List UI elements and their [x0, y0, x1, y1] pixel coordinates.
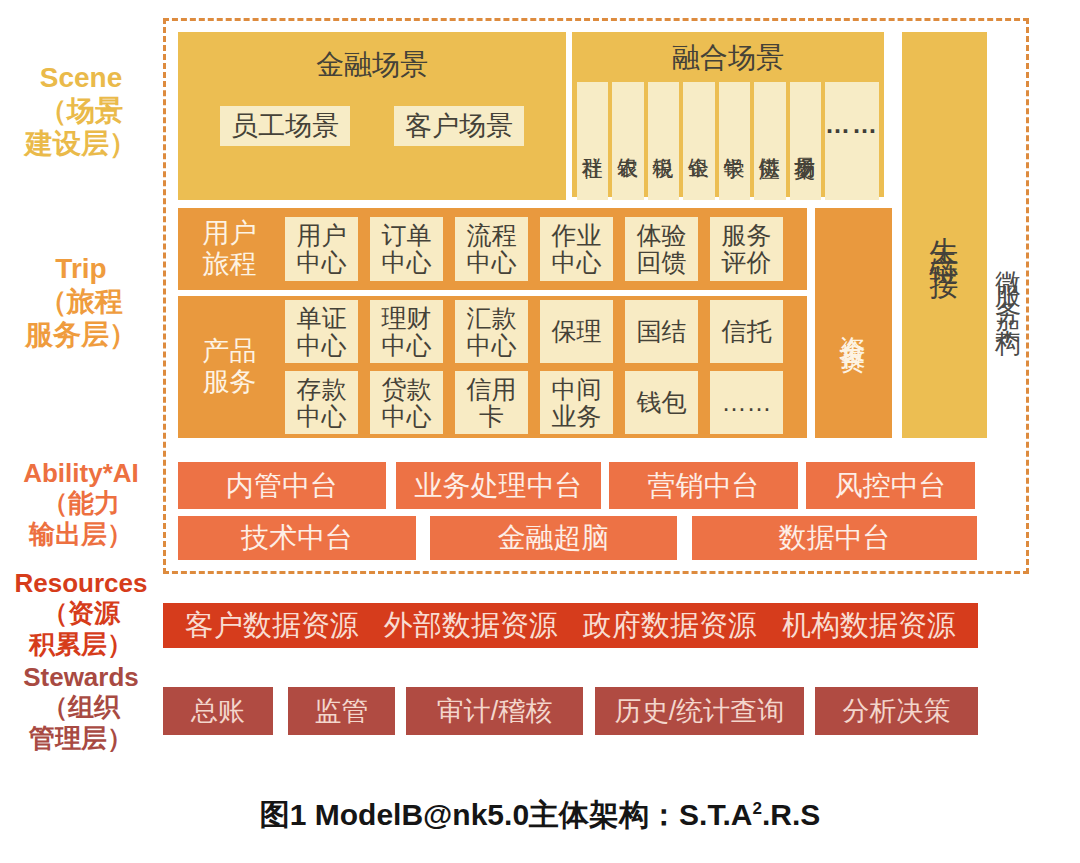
- operation-center-cell: 作业中心: [540, 217, 613, 281]
- figure-caption-prefix: 图1 ModelB@nk5.0主体架构：S.T.A: [260, 798, 753, 831]
- trust-cell: 信托: [710, 300, 783, 363]
- financial-scene-title: 金融场景: [178, 32, 566, 84]
- financial-superbrain-box: 金融超脑: [430, 516, 677, 560]
- marketing-platform-box: 营销中台: [609, 462, 798, 509]
- figure-caption-superscript: 2: [752, 799, 761, 818]
- layer-label-scene-zh2: 建设层）: [0, 128, 162, 161]
- external-data-resource: 外部数据资源: [384, 606, 558, 646]
- layer-label-scene: Scene （场景 建设层）: [0, 62, 162, 160]
- capital-investment-column: 资金投资: [815, 208, 892, 438]
- layer-label-trip-zh1: （旅程: [0, 286, 162, 319]
- fusion-col-ellipsis: ……: [825, 82, 879, 200]
- capital-investment-label: 资金投资: [836, 315, 871, 331]
- fusion-scene-title: 融合场景: [572, 32, 884, 77]
- layer-label-resources-en: Resources: [0, 568, 162, 598]
- layer-label-ability-zh1: （能力: [0, 488, 162, 518]
- layer-label-resources-zh1: （资源: [0, 598, 162, 628]
- layer-label-resources: Resources （资源 积累层）: [0, 568, 162, 659]
- order-center-cell: 订单中心: [370, 217, 443, 281]
- internal-mgmt-platform-box: 内管中台: [178, 462, 386, 509]
- deposit-center-cell: 存款中心: [285, 371, 358, 434]
- documents-center-cell: 单证中心: [285, 300, 358, 363]
- intl-settlement-cell: 国结: [625, 300, 698, 363]
- institution-data-resource: 机构数据资源: [782, 606, 956, 646]
- product-service-label: 产品服务: [178, 296, 285, 438]
- general-ledger-box: 总账: [163, 687, 273, 735]
- factoring-cell: 保理: [540, 300, 613, 363]
- audit-verification-box: 审计/稽核: [406, 687, 583, 735]
- layer-label-resources-zh2: 积累层）: [0, 629, 162, 659]
- service-evaluation-cell: 服务评价: [710, 217, 783, 281]
- layer-label-stewards-zh2: 管理层）: [0, 723, 162, 753]
- eco-link-label: 生态链接: [925, 213, 965, 257]
- modelbank-architecture-diagram: Scene （场景 建设层） Trip （旅程 服务层） Ability*AI …: [0, 0, 1080, 863]
- fusion-col-supply-chain: 供应链: [754, 82, 785, 200]
- fusion-col-bank-enterprise: 银企: [683, 82, 714, 200]
- business-processing-platform-box: 业务处理中台: [396, 462, 601, 509]
- layer-label-stewards-zh1: （组织: [0, 692, 162, 722]
- employee-scene-box: 员工场景: [220, 106, 350, 146]
- fusion-scene-block: 融合场景 社群 农银 税银 银企 学银 供应链 交易市场 ……: [572, 32, 884, 197]
- wallet-cell: 钱包: [625, 371, 698, 434]
- data-resources-bar: 客户数据资源 外部数据资源 政府数据资源 机构数据资源: [163, 603, 978, 648]
- product-service-cells: 单证中心 理财中心 汇款中心 保理 国结 信托 存款中心 贷款中心 信用卡 中间…: [285, 300, 783, 434]
- layer-label-trip-zh2: 服务层）: [0, 319, 162, 352]
- user-journey-label: 用户旅程: [178, 208, 285, 290]
- process-center-cell: 流程中心: [455, 217, 528, 281]
- risk-control-platform-box: 风控中台: [806, 462, 975, 509]
- financial-scene-boxes: 员工场景 客户场景: [178, 106, 566, 146]
- credit-card-cell: 信用卡: [455, 371, 528, 434]
- customer-scene-box: 客户场景: [394, 106, 524, 146]
- layer-label-ability: Ability*AI （能力 输出层）: [0, 458, 162, 549]
- fusion-col-community: 社群: [577, 82, 608, 200]
- government-data-resource: 政府数据资源: [583, 606, 757, 646]
- layer-label-trip: Trip （旅程 服务层）: [0, 253, 162, 351]
- layer-label-stewards-en: Stewards: [0, 662, 162, 692]
- user-journey-cells: 用户中心 订单中心 流程中心 作业中心 体验回馈 服务评价: [285, 217, 783, 281]
- supervision-box: 监管: [288, 687, 395, 735]
- financial-scene-block: 金融场景 员工场景 客户场景: [178, 32, 566, 200]
- product-service-block: 产品服务 单证中心 理财中心 汇款中心 保理 国结 信托 存款中心 贷款中心 信…: [178, 296, 807, 438]
- user-center-cell: 用户中心: [285, 217, 358, 281]
- fusion-col-agri-bank: 农银: [612, 82, 643, 200]
- wealth-center-cell: 理财中心: [370, 300, 443, 363]
- fusion-col-trading-market: 交易市场: [790, 82, 821, 200]
- layer-label-ability-zh2: 输出层）: [0, 519, 162, 549]
- user-journey-row: 用户旅程 用户中心 订单中心 流程中心 作业中心 体验回馈 服务评价: [178, 208, 807, 290]
- fusion-scene-columns: 社群 农银 税银 银企 学银 供应链 交易市场 ……: [572, 82, 884, 200]
- figure-caption: 图1 ModelB@nk5.0主体架构：S.T.A2.R.S: [0, 795, 1080, 836]
- technology-platform-box: 技术中台: [178, 516, 416, 560]
- eco-link-column: 生态链接: [902, 32, 987, 438]
- fusion-col-tax-bank: 税银: [648, 82, 679, 200]
- layer-label-stewards: Stewards （组织 管理层）: [0, 662, 162, 753]
- microservice-architecture: 微服务架构: [988, 172, 1030, 402]
- experience-feedback-cell: 体验回馈: [625, 217, 698, 281]
- figure-caption-suffix: .R.S: [762, 798, 820, 831]
- intermediate-business-cell: 中间业务: [540, 371, 613, 434]
- product-ellipsis-cell: ……: [710, 371, 783, 434]
- layer-label-scene-zh1: （场景: [0, 95, 162, 128]
- history-stats-query-box: 历史/统计查询: [595, 687, 804, 735]
- data-platform-box: 数据中台: [692, 516, 977, 560]
- customer-data-resource: 客户数据资源: [185, 606, 359, 646]
- microservice-architecture-label: 微服务架构: [992, 250, 1027, 325]
- fusion-col-edu-bank: 学银: [719, 82, 750, 200]
- layer-label-scene-en: Scene: [0, 62, 162, 95]
- analysis-decision-box: 分析决策: [815, 687, 978, 735]
- loan-center-cell: 贷款中心: [370, 371, 443, 434]
- layer-label-trip-en: Trip: [0, 253, 162, 286]
- layer-label-ability-en: Ability*AI: [0, 458, 162, 488]
- remittance-center-cell: 汇款中心: [455, 300, 528, 363]
